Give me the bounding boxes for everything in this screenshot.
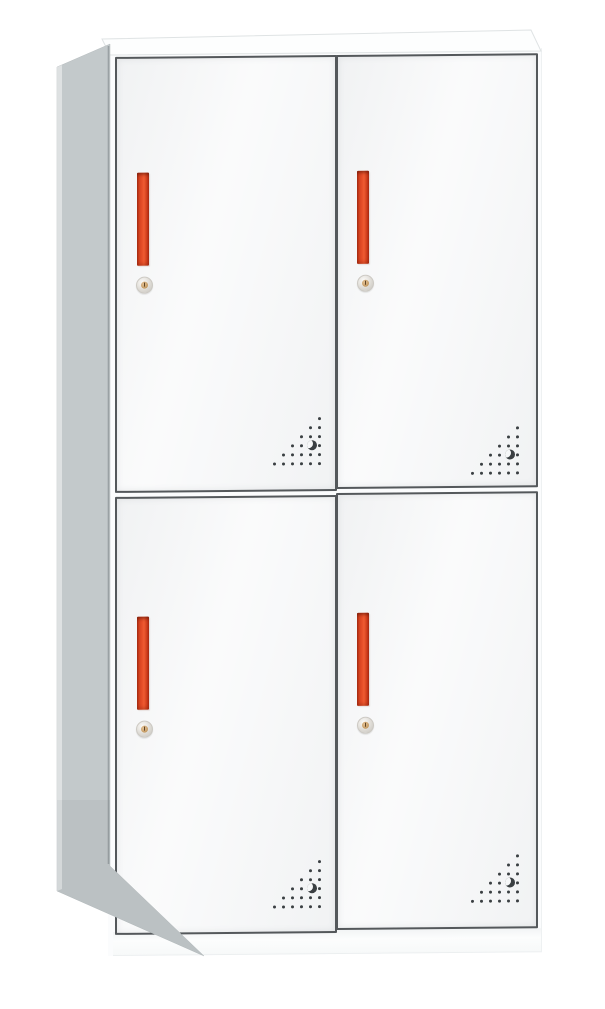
vent-hole xyxy=(309,426,312,429)
vent-hole xyxy=(516,435,519,438)
vent-hole xyxy=(471,900,474,903)
vent-hole xyxy=(498,454,501,457)
door-handle[interactable] xyxy=(357,171,369,264)
vent-hole xyxy=(489,472,492,475)
vent-hole xyxy=(291,887,294,890)
vent-hole xyxy=(318,417,321,420)
vent-crescent-hole xyxy=(307,440,317,450)
keyhole-core xyxy=(362,280,369,287)
vent-hole xyxy=(300,887,303,890)
vent-hole xyxy=(300,453,303,456)
vent-hole xyxy=(318,444,321,447)
door-handle[interactable] xyxy=(357,613,369,706)
vent-hole xyxy=(498,900,501,903)
vent-hole xyxy=(273,906,276,909)
vent-hole xyxy=(318,426,321,429)
vent-hole xyxy=(309,869,312,872)
vent-hole xyxy=(318,896,321,899)
vent-hole xyxy=(291,453,294,456)
vent-hole xyxy=(516,872,519,875)
vent-hole xyxy=(507,872,510,875)
vent-hole xyxy=(480,891,483,894)
vent-hole xyxy=(300,435,303,438)
vent-hole xyxy=(318,860,321,863)
vent-hole xyxy=(507,444,510,447)
vent-hole xyxy=(480,463,483,466)
vent-hole xyxy=(291,905,294,908)
vent-hole xyxy=(516,890,519,893)
vent-hole xyxy=(507,890,510,893)
vent-hole xyxy=(507,435,510,438)
vent-hole xyxy=(489,882,492,885)
vent-hole xyxy=(516,426,519,429)
vent-perforation xyxy=(468,423,522,477)
vent-hole xyxy=(507,462,510,465)
vent-hole xyxy=(507,899,510,902)
vent-hole xyxy=(291,896,294,899)
vent-hole xyxy=(507,863,510,866)
keyhole-lock[interactable] xyxy=(136,721,153,738)
vent-hole xyxy=(489,891,492,894)
vent-hole xyxy=(516,899,519,902)
vent-hole xyxy=(318,905,321,908)
side-panel-highlight-edge xyxy=(57,65,62,891)
vent-hole xyxy=(309,462,312,465)
vent-hole xyxy=(318,869,321,872)
vent-hole xyxy=(498,445,501,448)
vent-hole xyxy=(309,878,312,881)
keyhole-core xyxy=(141,282,148,289)
vent-hole xyxy=(516,444,519,447)
door-lower-left[interactable] xyxy=(115,495,337,935)
door-handle[interactable] xyxy=(137,617,149,710)
vent-hole xyxy=(507,471,510,474)
vent-hole xyxy=(309,896,312,899)
vent-hole xyxy=(300,905,303,908)
vent-perforation xyxy=(270,414,324,468)
vent-hole xyxy=(489,454,492,457)
door-handle[interactable] xyxy=(137,173,149,266)
vent-hole xyxy=(282,462,285,465)
product-photo-canvas xyxy=(0,0,605,1009)
vent-perforation xyxy=(270,857,324,911)
vent-hole xyxy=(516,854,519,857)
vent-hole xyxy=(309,905,312,908)
vent-crescent-hole xyxy=(505,449,515,459)
vent-hole xyxy=(471,472,474,475)
vent-hole xyxy=(282,453,285,456)
vent-hole xyxy=(309,453,312,456)
vent-hole xyxy=(489,900,492,903)
keyhole-core xyxy=(141,726,148,733)
vent-hole xyxy=(516,453,519,456)
vent-hole xyxy=(498,873,501,876)
vent-crescent-hole xyxy=(307,883,317,893)
vent-hole xyxy=(318,453,321,456)
vent-hole xyxy=(318,435,321,438)
keyhole-core xyxy=(362,722,369,729)
vent-hole xyxy=(273,463,276,466)
vent-hole xyxy=(309,435,312,438)
vent-perforation xyxy=(468,851,522,905)
vent-hole xyxy=(498,882,501,885)
vent-hole xyxy=(300,896,303,899)
door-upper-right[interactable] xyxy=(336,53,538,489)
vent-hole xyxy=(498,463,501,466)
vent-hole xyxy=(516,471,519,474)
keyhole-lock[interactable] xyxy=(357,275,374,292)
door-lower-right[interactable] xyxy=(336,491,538,930)
cabinet-front-face xyxy=(108,48,542,956)
vent-hole xyxy=(291,444,294,447)
vent-hole xyxy=(282,905,285,908)
vent-hole xyxy=(318,462,321,465)
vent-hole xyxy=(498,472,501,475)
vent-hole xyxy=(516,881,519,884)
vent-hole xyxy=(282,896,285,899)
vent-hole xyxy=(291,462,294,465)
vent-hole xyxy=(318,878,321,881)
vent-hole xyxy=(300,444,303,447)
vent-hole xyxy=(498,891,501,894)
vent-hole xyxy=(318,887,321,890)
vent-hole xyxy=(516,863,519,866)
vent-hole xyxy=(480,900,483,903)
vent-hole xyxy=(480,472,483,475)
keyhole-lock[interactable] xyxy=(136,277,153,294)
vent-hole xyxy=(300,878,303,881)
door-upper-left[interactable] xyxy=(115,55,337,493)
vent-hole xyxy=(489,463,492,466)
vent-hole xyxy=(516,462,519,465)
keyhole-lock[interactable] xyxy=(357,717,374,734)
vent-hole xyxy=(300,462,303,465)
vent-crescent-hole xyxy=(505,877,515,887)
